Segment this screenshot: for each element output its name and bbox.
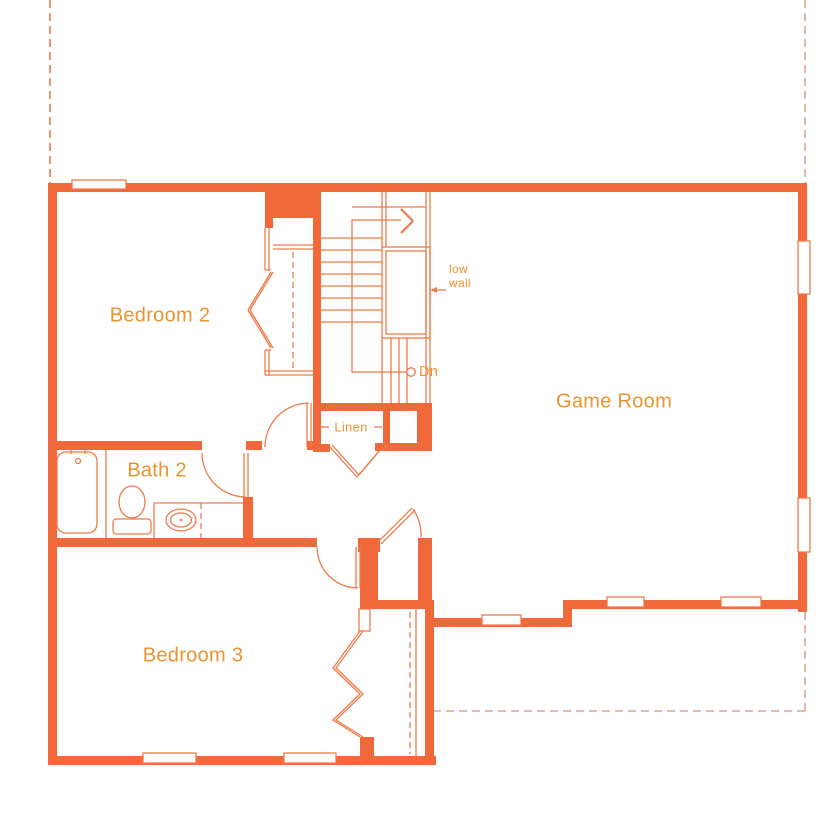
wall-chase-right [417,403,432,451]
low-wall-leader [430,287,446,293]
wall-block-left [358,538,380,552]
wall-stub-bedroom2-door [307,441,313,450]
label-dn: Dn [419,364,438,380]
wall-stub-bath-door [246,441,262,450]
wall-stairs-west [313,192,321,452]
wall-bedroom3closet-east [425,609,434,756]
window-gameroom-bottom-2 [721,597,761,607]
low-wall-box-inner [386,251,426,334]
bathtub-icon [57,449,97,533]
wall-gameroom-bottom-right [567,600,807,609]
door-swing-arc [317,547,358,588]
room-label-gameroom: Game Room [556,391,672,414]
wall-solid-block [273,192,313,218]
wall-crossbar [360,600,434,609]
stair-risers-lower [382,338,407,403]
window-bedroom3-bottom-1 [143,753,196,763]
wall-top [48,183,807,192]
linen-closet [321,427,387,477]
window-bedroom3-bottom-2 [284,753,336,763]
dn-marker-circle [407,368,415,376]
low-wall-box-outer [382,247,430,338]
wall-hallcloset-east [418,538,432,609]
wall-bottom-bedroom3 [48,756,436,765]
wall-bath-bedroom3 [48,538,317,547]
bifold-doors-bedroom2 [248,272,273,348]
wall-closet-left-top [265,192,273,228]
wall-linen-bottom-stub [313,444,330,452]
label-low-wall: low wall [449,262,471,290]
door-swing-arc [202,453,246,497]
label-low-wall-line1: low [449,262,468,276]
room-label-bath2: Bath 2 [127,460,187,483]
window-gameroom-bottom-1 [607,597,644,607]
tub-drain [76,459,81,464]
label-low-wall-line2: wall [449,276,471,290]
toilet-icon [113,486,151,534]
wall-chase-left [383,411,390,443]
label-linen: Linen [334,420,367,435]
floor-plan: Bedroom 2 Bath 2 Bedroom 3 Game Room Lin… [0,0,840,840]
floor-plan-canvas [0,0,840,840]
wall-linen-top [313,403,432,411]
door-swing-arc [265,403,309,447]
bedroom2-door [265,403,311,447]
window-gameroom-right-upper [798,241,810,294]
wall-bedroom2-bath [48,441,202,450]
hall-closet-door [378,508,421,544]
sink-vanity-icon [154,503,243,538]
room-label-bedroom3: Bedroom 3 [143,645,244,668]
wall-left [48,183,57,765]
bedroom3-door [317,547,360,588]
bath2-door [202,453,248,497]
bedroom3-closet [333,609,416,756]
leader-arrowhead-icon [430,287,437,293]
staircase [321,192,430,403]
wall-bath-east-lower [243,497,253,538]
bedroom2-closet [248,228,313,375]
window-bedroom2-top [72,180,126,189]
room-label-bedroom2: Bedroom 2 [110,305,211,328]
up-arrow-icon [401,209,413,221]
window-gameroom-bottom-3 [482,615,521,625]
window-gameroom-right-lower [798,498,810,552]
stair-walkline [352,209,415,376]
door-swing-arc [413,509,421,537]
closet-jamb [359,609,370,631]
wall-bifold-stub [360,737,374,756]
bifold-doors-bedroom3 [333,631,363,737]
